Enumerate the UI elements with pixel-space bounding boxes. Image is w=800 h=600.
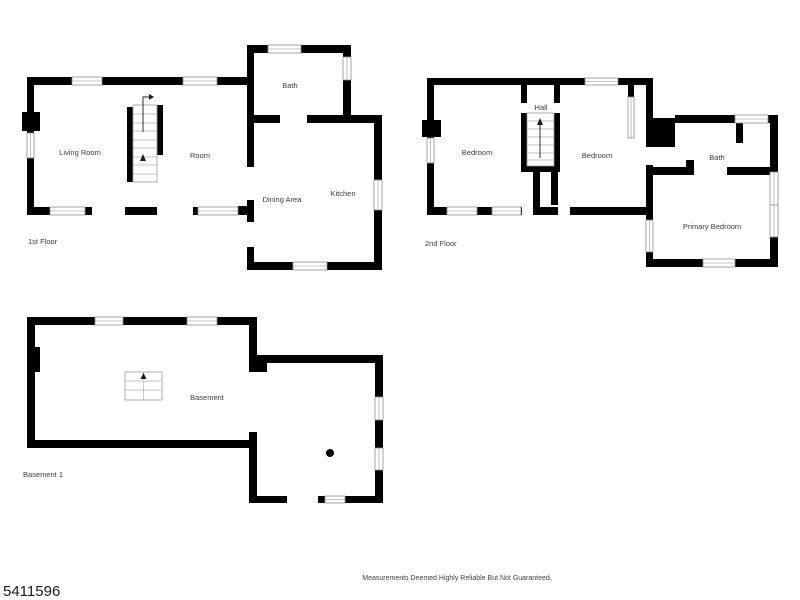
window (27, 133, 34, 158)
chimney (22, 112, 40, 131)
window (375, 397, 383, 420)
window (770, 172, 778, 205)
listing-number: 5411596 (3, 583, 60, 600)
measurements-disclaimer: Measurements Deemed Highly Reliable But … (362, 575, 552, 582)
window (183, 77, 217, 85)
window (628, 97, 634, 138)
floor-plan-drawing: Living Room Room Bath Dining Area Kitche… (0, 0, 800, 600)
support-column-dot (326, 449, 334, 457)
window (646, 220, 653, 252)
room-label-bath-1st: Bath (282, 81, 297, 90)
window (187, 317, 217, 325)
window (585, 78, 618, 85)
staircase (527, 113, 554, 166)
window (72, 77, 102, 85)
room-label-living-room: Living Room (59, 148, 101, 157)
first-floor-plan: Living Room Room Bath Dining Area Kitche… (22, 45, 382, 270)
window (735, 115, 768, 123)
room-label-dining-area: Dining Area (263, 195, 303, 204)
window (375, 448, 383, 470)
window (427, 138, 434, 163)
window (374, 180, 382, 210)
staircase (133, 94, 157, 182)
window (198, 207, 238, 215)
room-label-bath-2nd: Bath (709, 153, 724, 162)
chimney (422, 120, 441, 137)
window (325, 496, 345, 503)
window (492, 207, 521, 215)
window (343, 57, 351, 80)
floor-label-2nd-floor: 2nd Floor (425, 239, 457, 248)
room-label-room: Room (190, 151, 210, 160)
floor-label-1st-floor: 1st Floor (28, 237, 58, 246)
second-floor-walls (422, 78, 778, 267)
window (703, 259, 735, 267)
room-label-hall: Hall (535, 103, 548, 112)
chimney (653, 118, 675, 147)
room-label-basement: Basement (190, 393, 225, 402)
window (447, 207, 477, 215)
basement-walls (27, 317, 383, 503)
chimney (27, 347, 40, 372)
room-label-kitchen: Kitchen (330, 189, 355, 198)
floor-label-basement-1: Basement 1 (23, 470, 63, 479)
room-label-bedroom-left: Bedroom (462, 148, 492, 157)
window (50, 207, 85, 215)
window (770, 205, 778, 237)
window (293, 262, 327, 270)
room-label-bedroom-middle: Bedroom (582, 151, 612, 160)
basement-plan: Basement Basement 1 (23, 317, 383, 503)
floor-plan-page: Living Room Room Bath Dining Area Kitche… (0, 0, 800, 600)
room-label-primary-bedroom: Primary Bedroom (683, 222, 741, 231)
window (268, 45, 301, 53)
staircase (125, 372, 162, 400)
second-floor-plan: Bedroom Hall Bedroom Bath Primary Bedroo… (422, 78, 778, 267)
window (95, 317, 123, 325)
